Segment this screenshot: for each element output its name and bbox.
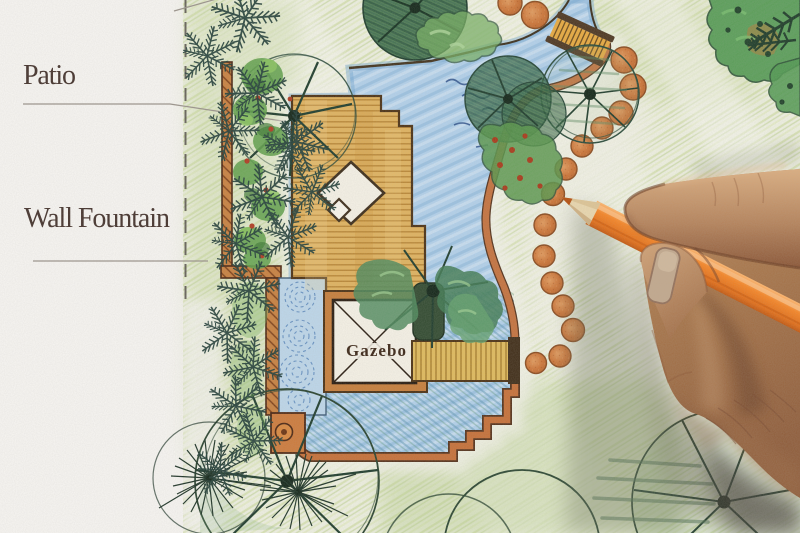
svg-text:Wall Fountain: Wall Fountain [24, 203, 170, 234]
svg-text:Gazebo: Gazebo [346, 341, 406, 360]
svg-text:Patio: Patio [23, 60, 76, 91]
